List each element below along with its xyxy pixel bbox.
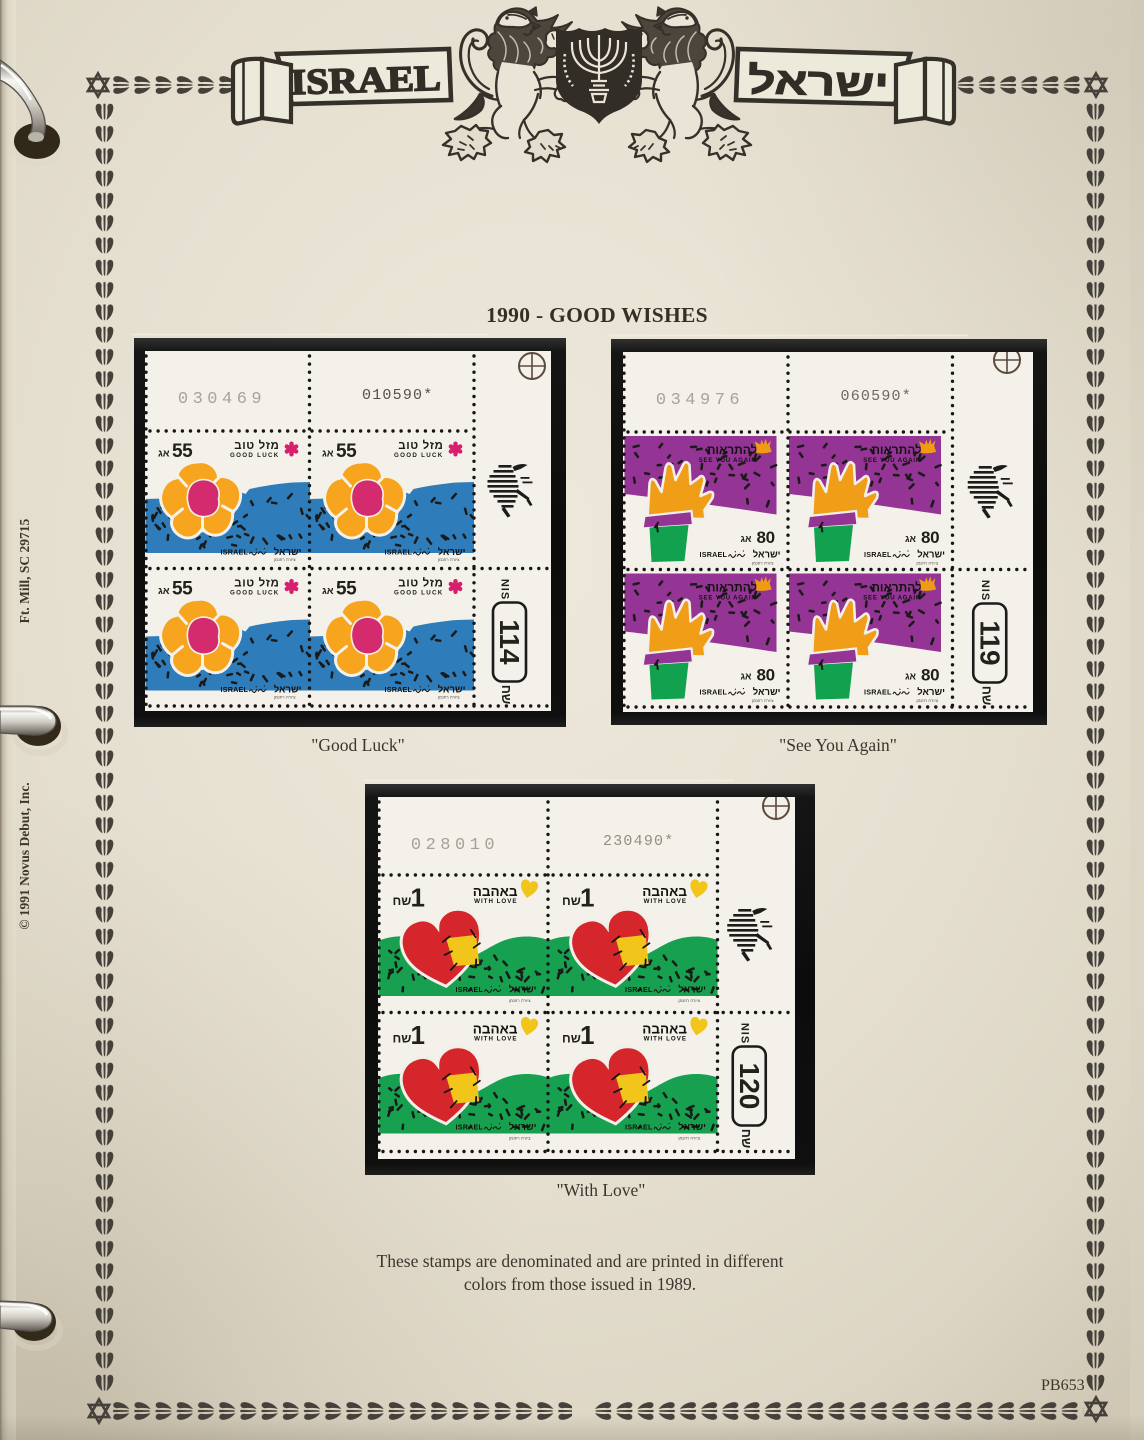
svg-text:230490*: 230490* (603, 833, 674, 850)
svg-text:שח: שח (739, 1129, 754, 1149)
svg-text:010590*: 010590* (362, 387, 433, 404)
svg-text:NIS: NIS (738, 1023, 750, 1044)
svg-text:"With Love": "With Love" (557, 1180, 646, 1200)
svg-text:© 1991 Novus Debut, Inc.: © 1991 Novus Debut, Inc. (17, 782, 32, 929)
svg-text:030469: 030469 (178, 390, 266, 409)
svg-text:שח: שח (979, 686, 994, 706)
svg-text:120: 120 (734, 1063, 765, 1110)
svg-text:"See You Again": "See You Again" (779, 735, 897, 755)
svg-text:060590*: 060590* (841, 388, 912, 405)
svg-text:ישראל: ישראל (747, 60, 889, 106)
svg-text:These stamps are denominated a: These stamps are denominated and are pri… (377, 1251, 784, 1271)
svg-text:"Good Luck": "Good Luck" (311, 735, 405, 755)
svg-text:028010: 028010 (411, 836, 499, 855)
svg-text:034976: 034976 (656, 391, 744, 410)
svg-text:119: 119 (974, 620, 1005, 665)
svg-text:שח: שח (499, 685, 514, 705)
svg-text:NIS: NIS (499, 579, 511, 600)
svg-text:Ft. Mill, SC 29715: Ft. Mill, SC 29715 (17, 518, 32, 623)
svg-text:NIS: NIS (979, 580, 991, 601)
svg-text:PB653: PB653 (1041, 1377, 1085, 1394)
svg-text:ISRAEL: ISRAEL (290, 59, 442, 103)
svg-text:114: 114 (494, 619, 525, 665)
svg-text:colors from those issued in 19: colors from those issued in 1989. (464, 1274, 696, 1294)
svg-text:1990 - GOOD WISHES: 1990 - GOOD WISHES (486, 303, 708, 327)
